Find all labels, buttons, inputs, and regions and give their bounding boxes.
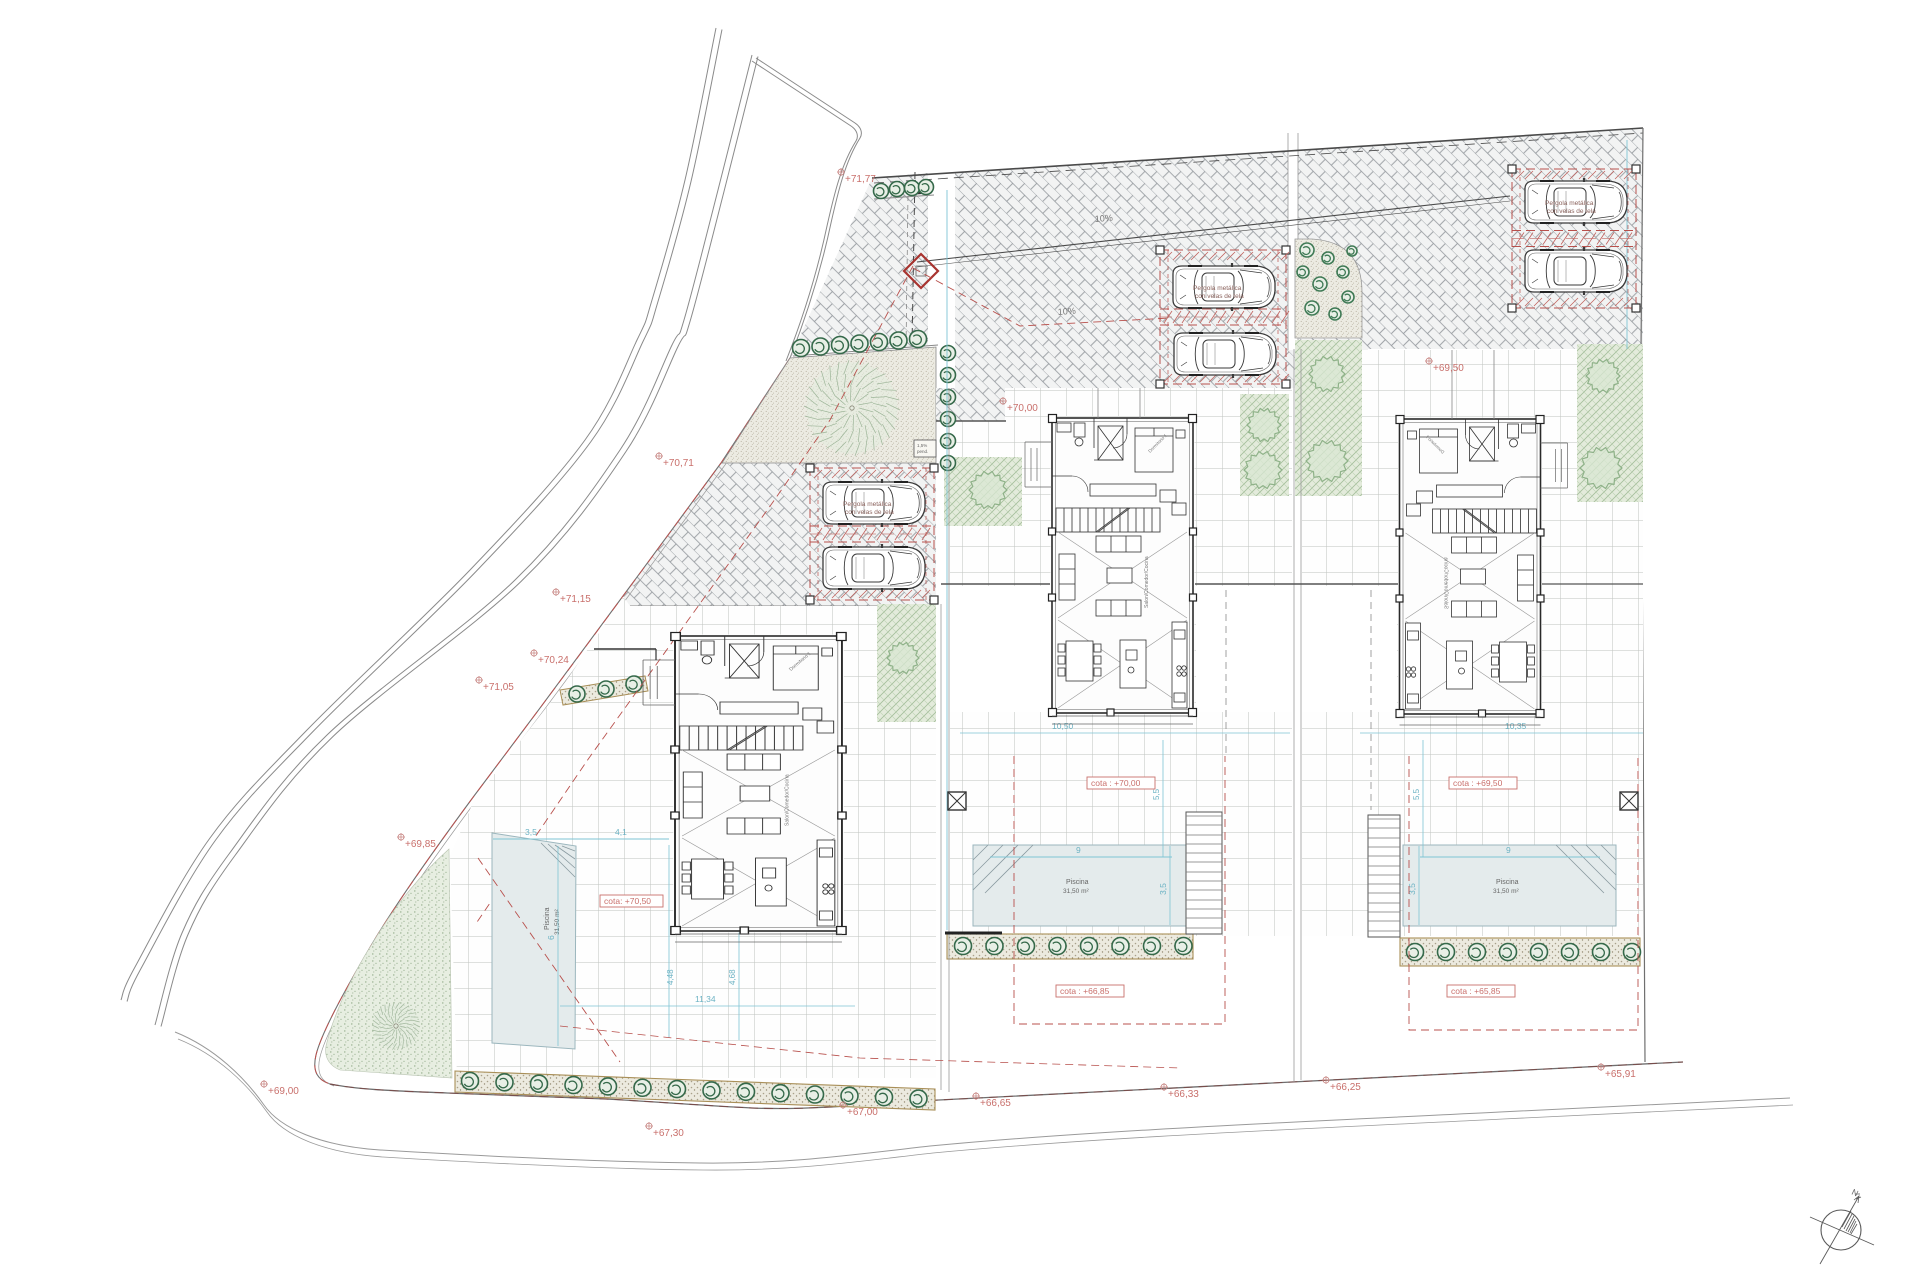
- svg-text:cota : +70,00: cota : +70,00: [1091, 778, 1141, 788]
- svg-text:Pergola metálica: Pergola metálica: [1545, 200, 1594, 207]
- svg-text:10,35: 10,35: [1505, 721, 1527, 731]
- svg-text:11,34: 11,34: [695, 994, 716, 1004]
- svg-text:4,48: 4,48: [666, 969, 675, 985]
- svg-text:+69,50: +69,50: [1433, 363, 1464, 374]
- svg-text:+70,24: +70,24: [538, 655, 569, 666]
- svg-text:+66,65: +66,65: [980, 1098, 1011, 1109]
- svg-text:con velas de tela: con velas de tela: [1547, 208, 1596, 215]
- svg-text:cota : +66,85: cota : +66,85: [1060, 986, 1110, 996]
- svg-text:+69,00: +69,00: [268, 1086, 299, 1097]
- svg-text:1,5%: 1,5%: [917, 443, 927, 448]
- svg-text:31,50 m²: 31,50 m²: [554, 909, 561, 935]
- svg-text:+70,71: +70,71: [663, 458, 694, 469]
- svg-text:6: 6: [546, 935, 556, 940]
- svg-text:+66,25: +66,25: [1330, 1082, 1361, 1093]
- svg-text:3,5: 3,5: [1158, 883, 1168, 895]
- svg-text:4,1: 4,1: [615, 827, 627, 837]
- svg-text:3,5: 3,5: [525, 827, 537, 837]
- svg-text:cota : +69,50: cota : +69,50: [1453, 778, 1503, 788]
- svg-text:Piscina: Piscina: [544, 907, 551, 930]
- svg-text:+71,77: +71,77: [845, 174, 876, 185]
- svg-text:Piscina: Piscina: [1496, 879, 1519, 886]
- svg-text:+71,05: +71,05: [483, 682, 514, 693]
- svg-text:+67,00: +67,00: [847, 1107, 878, 1118]
- svg-text:+70,00: +70,00: [1007, 403, 1038, 414]
- svg-text:9: 9: [1506, 845, 1511, 855]
- svg-text:+65,91: +65,91: [1605, 1069, 1636, 1080]
- svg-text:Piscina: Piscina: [1066, 879, 1089, 886]
- svg-text:+71,15: +71,15: [560, 594, 591, 605]
- svg-text:cota: +70,50: cota: +70,50: [604, 896, 651, 906]
- svg-text:31,50 m²: 31,50 m²: [1063, 888, 1089, 895]
- svg-text:Pergola metálica: Pergola metálica: [843, 501, 892, 508]
- svg-text:5,5: 5,5: [1152, 788, 1161, 800]
- svg-text:5,5: 5,5: [1412, 788, 1421, 800]
- svg-text:31,50 m²: 31,50 m²: [1493, 888, 1519, 895]
- svg-text:10%: 10%: [1057, 306, 1076, 317]
- svg-text:con velas de tela: con velas de tela: [1195, 293, 1244, 300]
- svg-text:Pergola metálica: Pergola metálica: [1193, 285, 1242, 292]
- svg-text:10%: 10%: [1094, 213, 1113, 224]
- svg-text:con velas de tela: con velas de tela: [845, 509, 894, 516]
- svg-text:9: 9: [1076, 845, 1081, 855]
- svg-text:pend.: pend.: [917, 449, 928, 454]
- svg-text:+66,33: +66,33: [1168, 1089, 1199, 1100]
- svg-text:cota : +65,85: cota : +65,85: [1451, 986, 1501, 996]
- svg-text:3,5: 3,5: [1407, 883, 1417, 895]
- svg-text:+67,30: +67,30: [653, 1128, 684, 1139]
- svg-text:4,68: 4,68: [728, 969, 737, 985]
- svg-text:+69,85: +69,85: [405, 839, 436, 850]
- svg-text:10,50: 10,50: [1052, 721, 1074, 731]
